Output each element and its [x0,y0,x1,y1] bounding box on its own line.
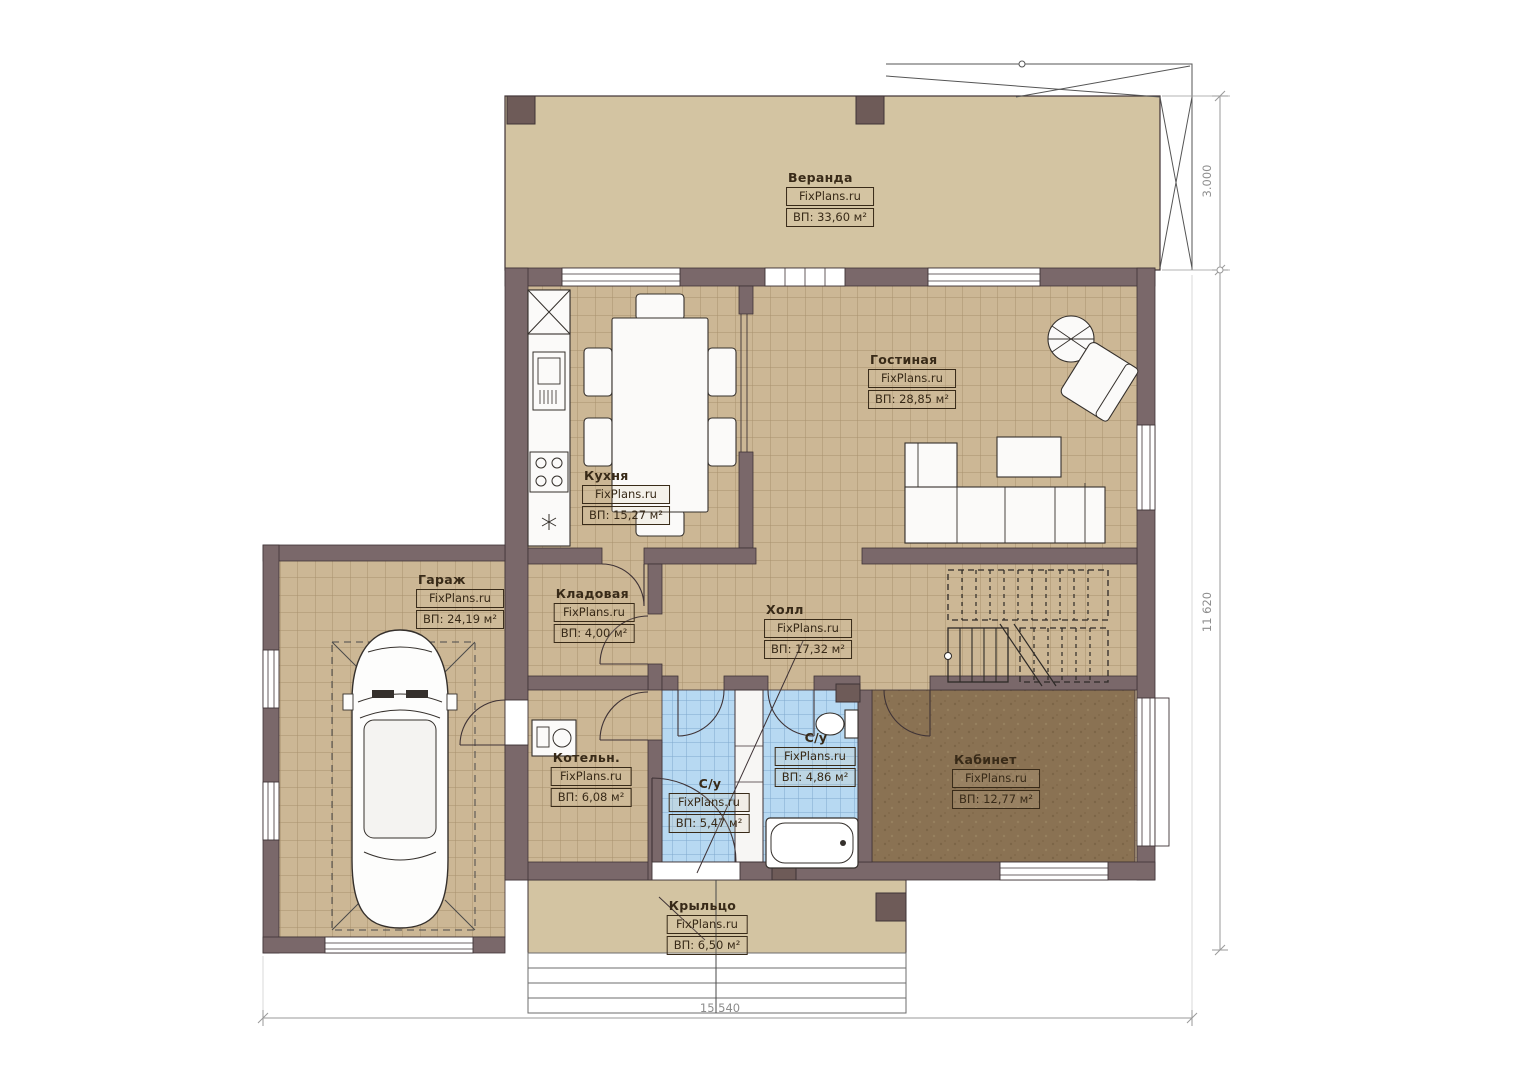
room-label-boiler-room: Котельн. FixPlans.ru ВП: 6,08 м² [551,750,632,807]
room-name: Гостиная [870,352,937,367]
room-area: ВП: 33,60 м² [786,208,874,227]
dimension-veranda-depth: 3.000 [1200,165,1214,198]
room-label-kitchen: Кухня FixPlans.ru ВП: 15,27 м² [582,468,670,525]
watermark: FixPlans.ru [764,619,852,638]
kitchen-counter [528,290,570,546]
watermark: FixPlans.ru [952,769,1040,788]
room-area: ВП: 12,77 м² [952,790,1040,809]
room-label-hall: Холл FixPlans.ru ВП: 17,32 м² [764,602,852,659]
room-name: Гараж [418,572,466,587]
room-label-porch: Крыльцо FixPlans.ru ВП: 6,50 м² [667,898,748,955]
car [343,630,457,928]
room-name: С/у [699,776,722,791]
room-label-veranda: Веранда FixPlans.ru ВП: 33,60 м² [786,170,874,227]
room-area: ВП: 6,08 м² [551,788,632,807]
room-name: С/у [805,730,828,745]
room-name: Веранда [788,170,853,185]
room-name: Холл [766,602,804,617]
dimension-house-front: 15 540 [700,1001,740,1015]
watermark: FixPlans.ru [669,793,750,812]
room-area: ВП: 24,19 м² [416,610,504,629]
room-area: ВП: 17,32 м² [764,640,852,659]
watermark: FixPlans.ru [775,747,856,766]
room-name: Кабинет [954,752,1017,767]
room-label-storage: Кладовая FixPlans.ru ВП: 4,00 м² [554,586,635,643]
room-name: Крыльцо [669,898,736,913]
bathtub [766,818,858,868]
watermark: FixPlans.ru [868,369,956,388]
watermark: FixPlans.ru [667,915,748,934]
room-name: Котельн. [553,750,620,765]
room-area: ВП: 4,00 м² [554,624,635,643]
room-label-bathroom-2: С/у FixPlans.ru ВП: 4,86 м² [775,730,856,787]
watermark: FixPlans.ru [551,767,632,786]
watermark: FixPlans.ru [582,485,670,504]
watermark: FixPlans.ru [786,187,874,206]
room-label-bathroom-1: С/у FixPlans.ru ВП: 5,47 м² [669,776,750,833]
room-area: ВП: 4,86 м² [775,768,856,787]
watermark: FixPlans.ru [416,589,504,608]
coffee-table [997,437,1061,477]
watermark: FixPlans.ru [554,603,635,622]
dimension-house-side: 11 620 [1200,592,1214,632]
room-label-living-room: Гостиная FixPlans.ru ВП: 28,85 м² [868,352,956,409]
room-area: ВП: 28,85 м² [868,390,956,409]
room-name: Кухня [584,468,629,483]
room-area: ВП: 15,27 м² [582,506,670,525]
room-label-garage: Гараж FixPlans.ru ВП: 24,19 м² [416,572,504,629]
floor-plan: Веранда FixPlans.ru ВП: 33,60 м² Гостина… [0,0,1528,1080]
room-name: Кладовая [556,586,629,601]
room-area: ВП: 5,47 м² [669,814,750,833]
room-area: ВП: 6,50 м² [667,936,748,955]
floor-plan-drawing [0,0,1528,1080]
room-label-office: Кабинет FixPlans.ru ВП: 12,77 м² [952,752,1040,809]
